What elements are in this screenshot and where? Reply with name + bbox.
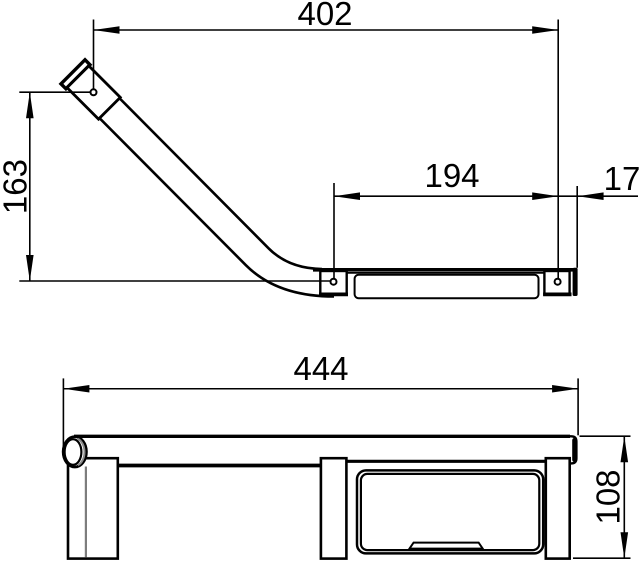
svg-text:17: 17 [604, 160, 640, 197]
svg-text:444: 444 [293, 350, 348, 387]
svg-text:163: 163 [0, 159, 34, 214]
svg-text:402: 402 [297, 0, 352, 32]
svg-text:194: 194 [424, 157, 479, 194]
svg-text:108: 108 [590, 469, 627, 524]
